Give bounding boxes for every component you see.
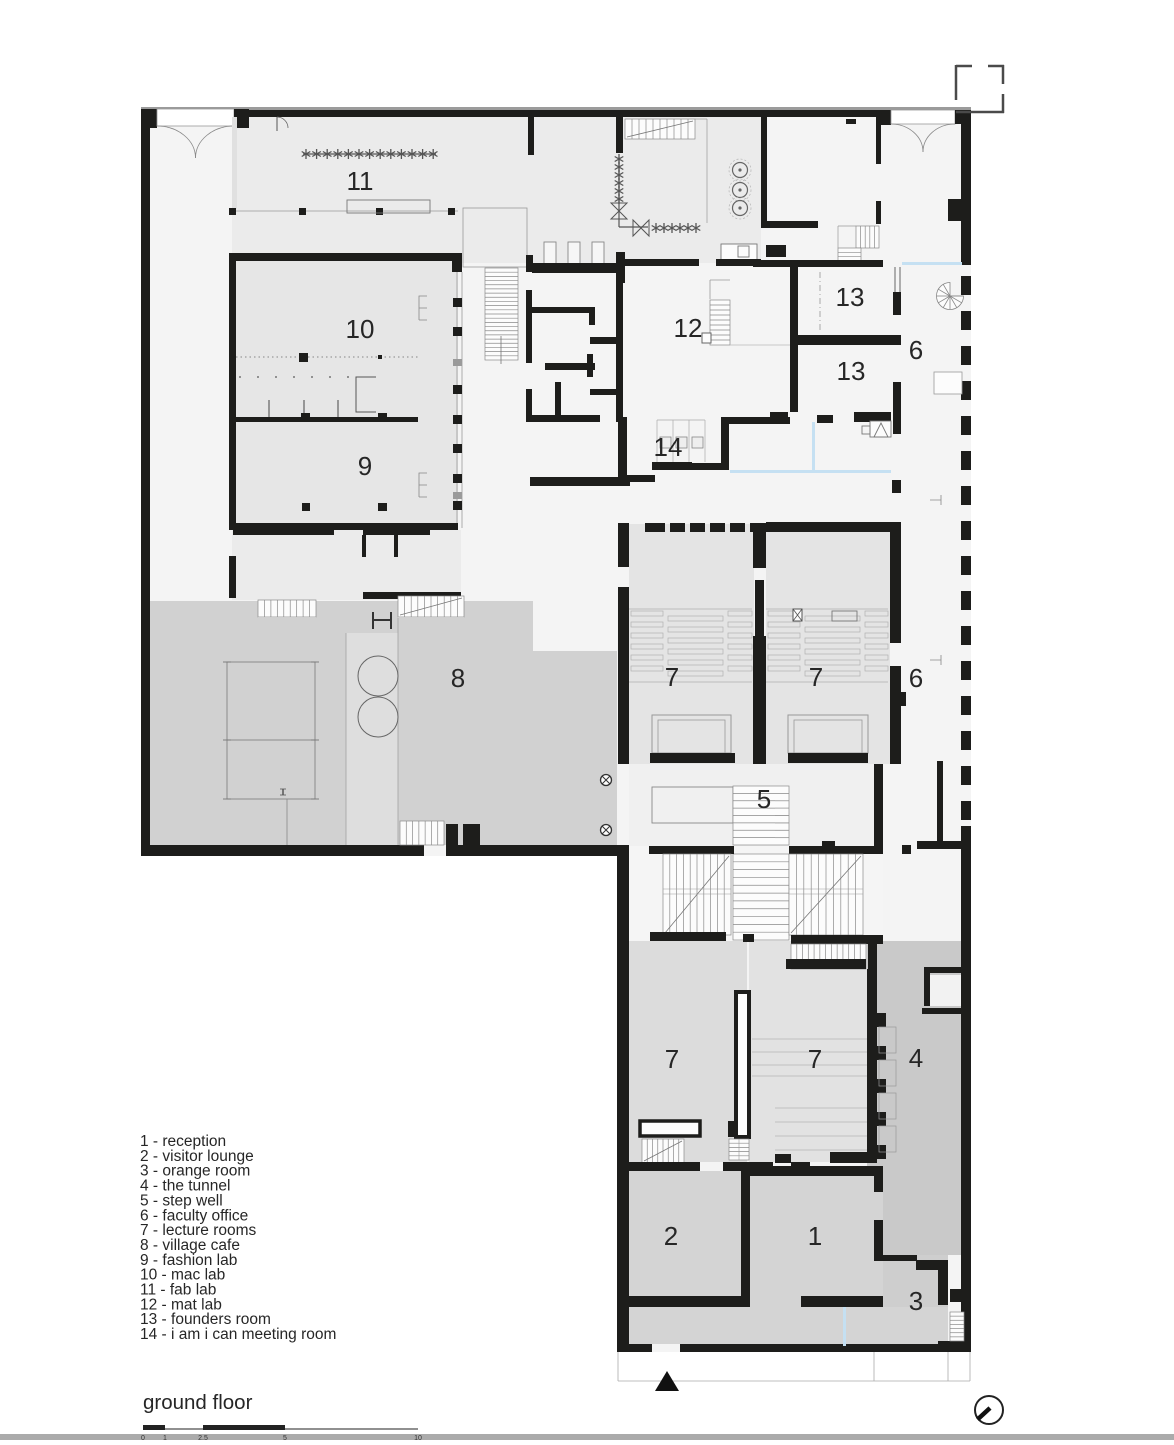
svg-text:10: 10	[346, 314, 375, 344]
svg-text:7: 7	[808, 1044, 822, 1074]
svg-text:4: 4	[909, 1043, 923, 1073]
svg-text:5: 5	[757, 784, 771, 814]
svg-text:5: 5	[283, 1435, 287, 1440]
svg-text:ground floor: ground floor	[143, 1391, 253, 1414]
svg-text:9: 9	[358, 451, 372, 481]
svg-text:7: 7	[665, 662, 679, 692]
svg-text:2,5: 2,5	[198, 1435, 208, 1440]
svg-text:13: 13	[837, 356, 866, 386]
svg-text:6: 6	[909, 663, 923, 693]
svg-text:7: 7	[809, 662, 823, 692]
svg-text:10: 10	[414, 1435, 422, 1440]
svg-text:13: 13	[836, 282, 865, 312]
svg-text:1: 1	[808, 1221, 822, 1251]
svg-text:14 - i am i can meeting room: 14 - i am i can meeting room	[140, 1326, 336, 1343]
svg-text:6: 6	[909, 335, 923, 365]
svg-text:1: 1	[163, 1435, 167, 1440]
svg-text:12: 12	[674, 313, 703, 343]
svg-text:7: 7	[665, 1044, 679, 1074]
svg-text:14: 14	[654, 432, 683, 462]
svg-text:11: 11	[347, 166, 374, 196]
svg-text:3: 3	[909, 1286, 923, 1316]
svg-text:2: 2	[664, 1221, 678, 1251]
svg-text:8: 8	[451, 663, 465, 693]
svg-text:0: 0	[141, 1435, 145, 1440]
